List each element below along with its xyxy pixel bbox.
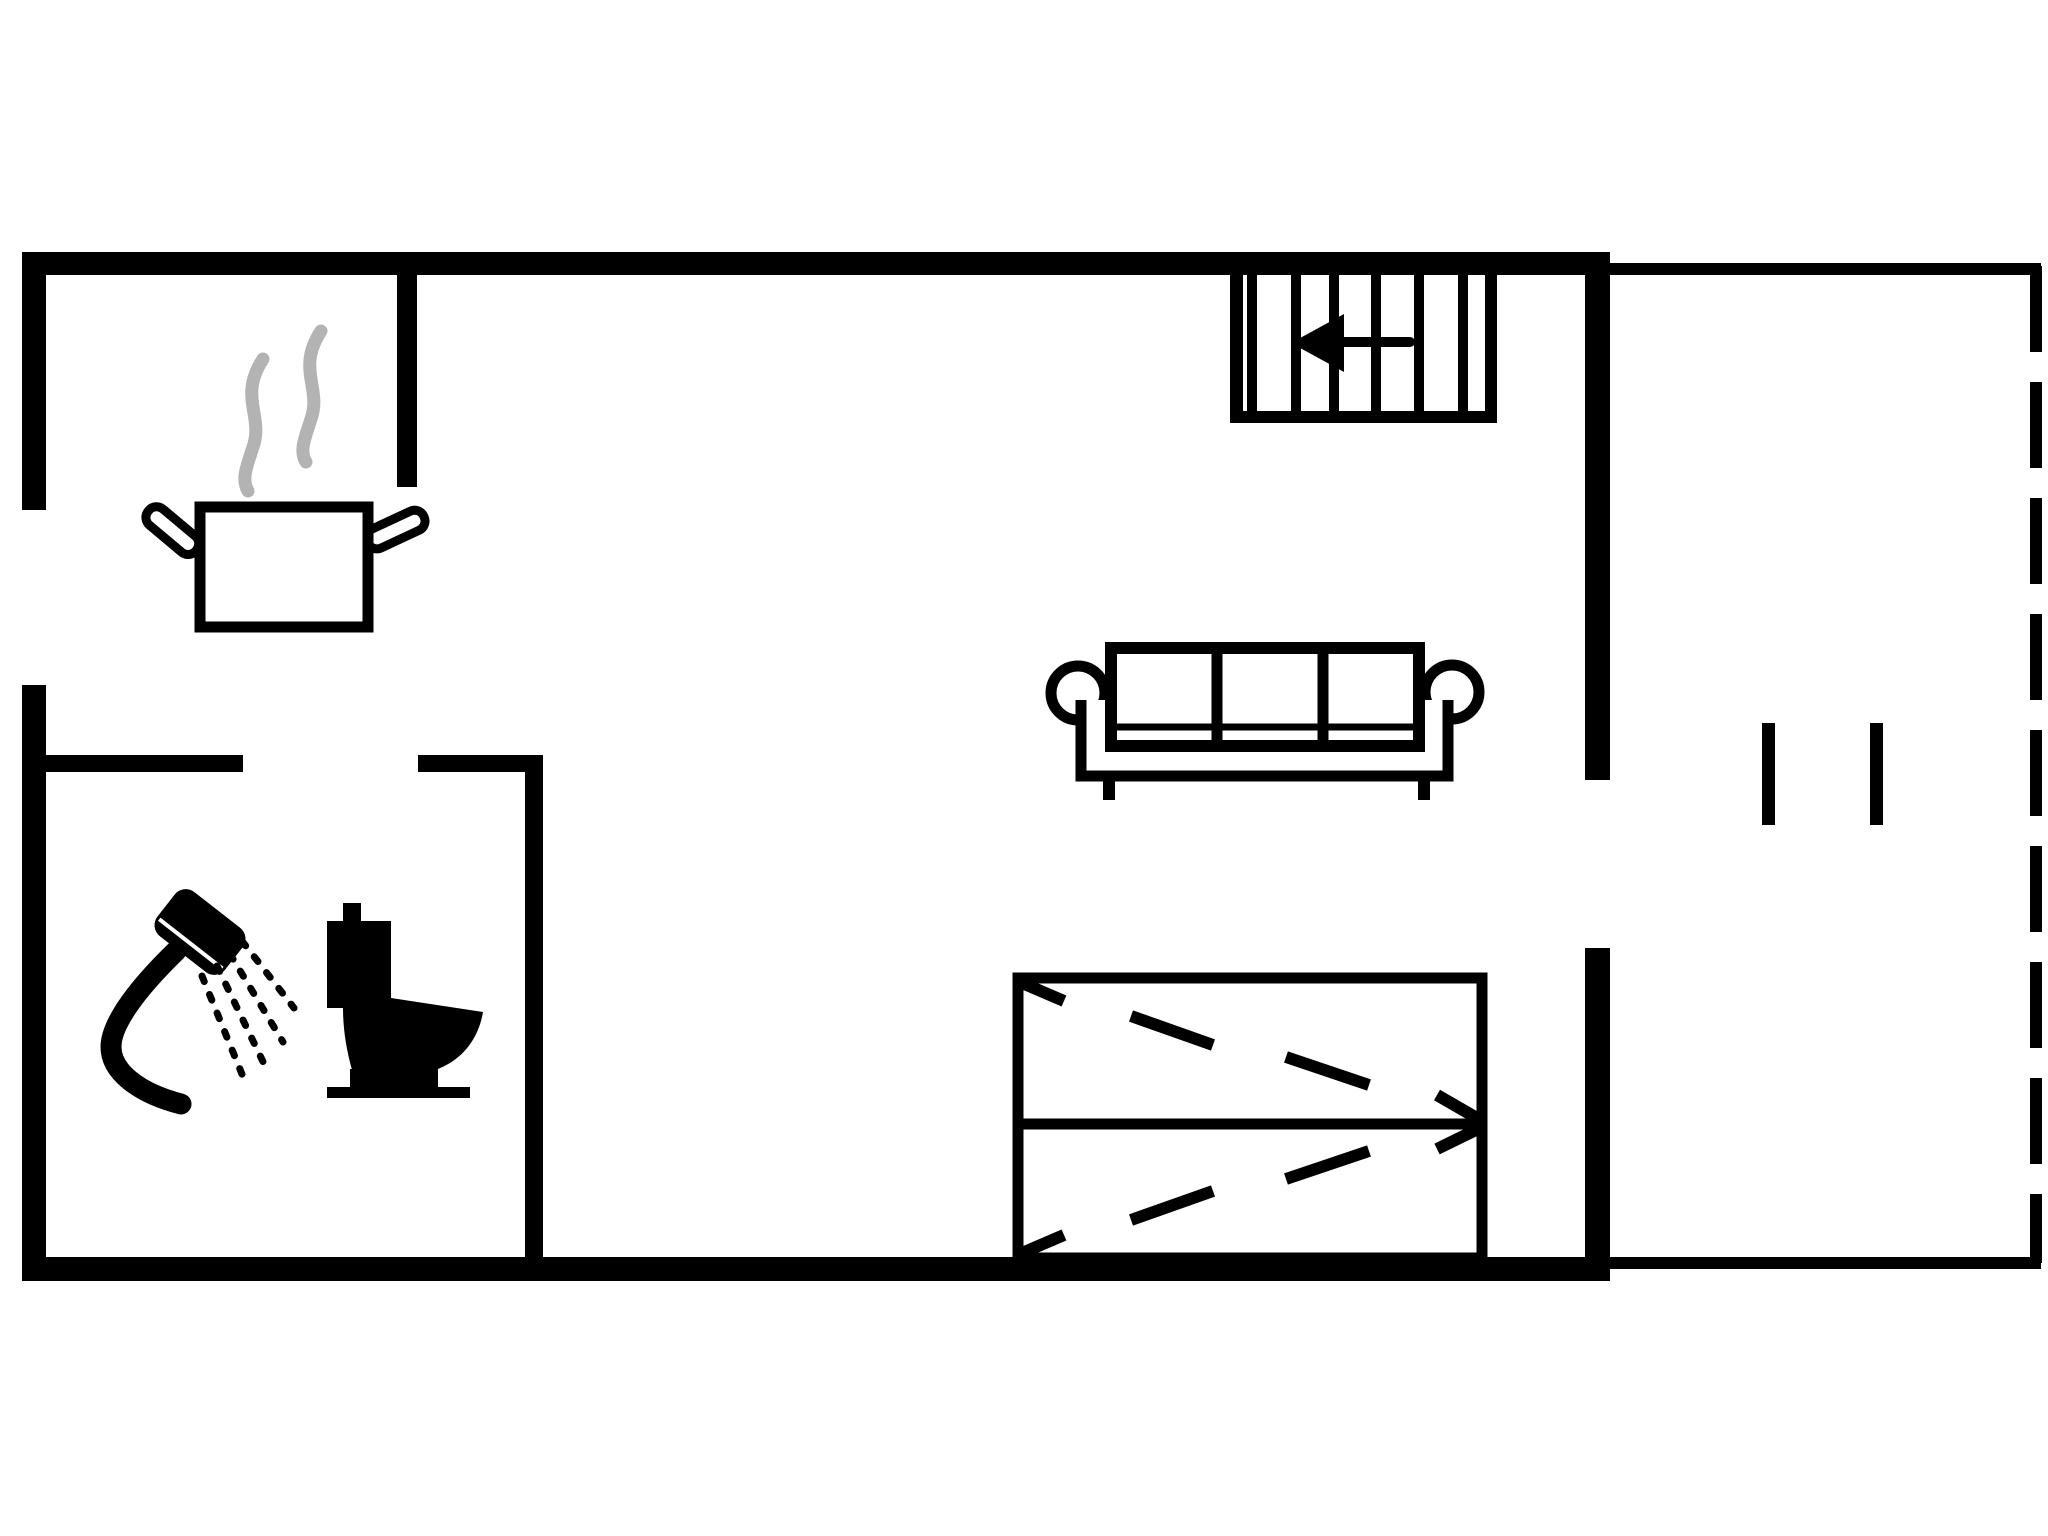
wall-bathroom-top-right [418, 755, 540, 772]
wall-left-lower [22, 685, 46, 1281]
stair-base-line [1230, 411, 1497, 423]
sofa-leg-left [1103, 780, 1115, 800]
wall-right-upper [1585, 252, 1610, 780]
stair-tread [1414, 275, 1424, 411]
terrace-door-mark-right [1870, 723, 1883, 825]
wall-left-upper [22, 252, 46, 510]
wall-top [22, 252, 1610, 275]
wall-right-lower [1585, 948, 1610, 1281]
wall-bathroom-top-left [46, 755, 243, 772]
floor-plan-page [0, 0, 2048, 1536]
stair-frame-left [1230, 275, 1243, 423]
terrace-top-edge [1610, 263, 2041, 275]
terrace-bottom-edge [1610, 1257, 2041, 1269]
terrace-door-mark-left [1762, 723, 1775, 825]
wall-bathroom-right [525, 755, 543, 1257]
toilet-base-plate [327, 1087, 470, 1098]
sofa-backrest [1111, 648, 1419, 746]
toilet-foot [350, 1069, 438, 1088]
pot-body [200, 507, 368, 627]
background [0, 0, 2048, 1536]
sofa-leg-right [1418, 780, 1430, 800]
sofa-icon [1051, 644, 1479, 800]
wall-kitchen-divider [397, 275, 417, 487]
stair-tread [1247, 275, 1257, 411]
stair-frame-right [1485, 275, 1497, 423]
floor-plan-canvas [0, 0, 2048, 1536]
stair-tread [1458, 275, 1468, 411]
